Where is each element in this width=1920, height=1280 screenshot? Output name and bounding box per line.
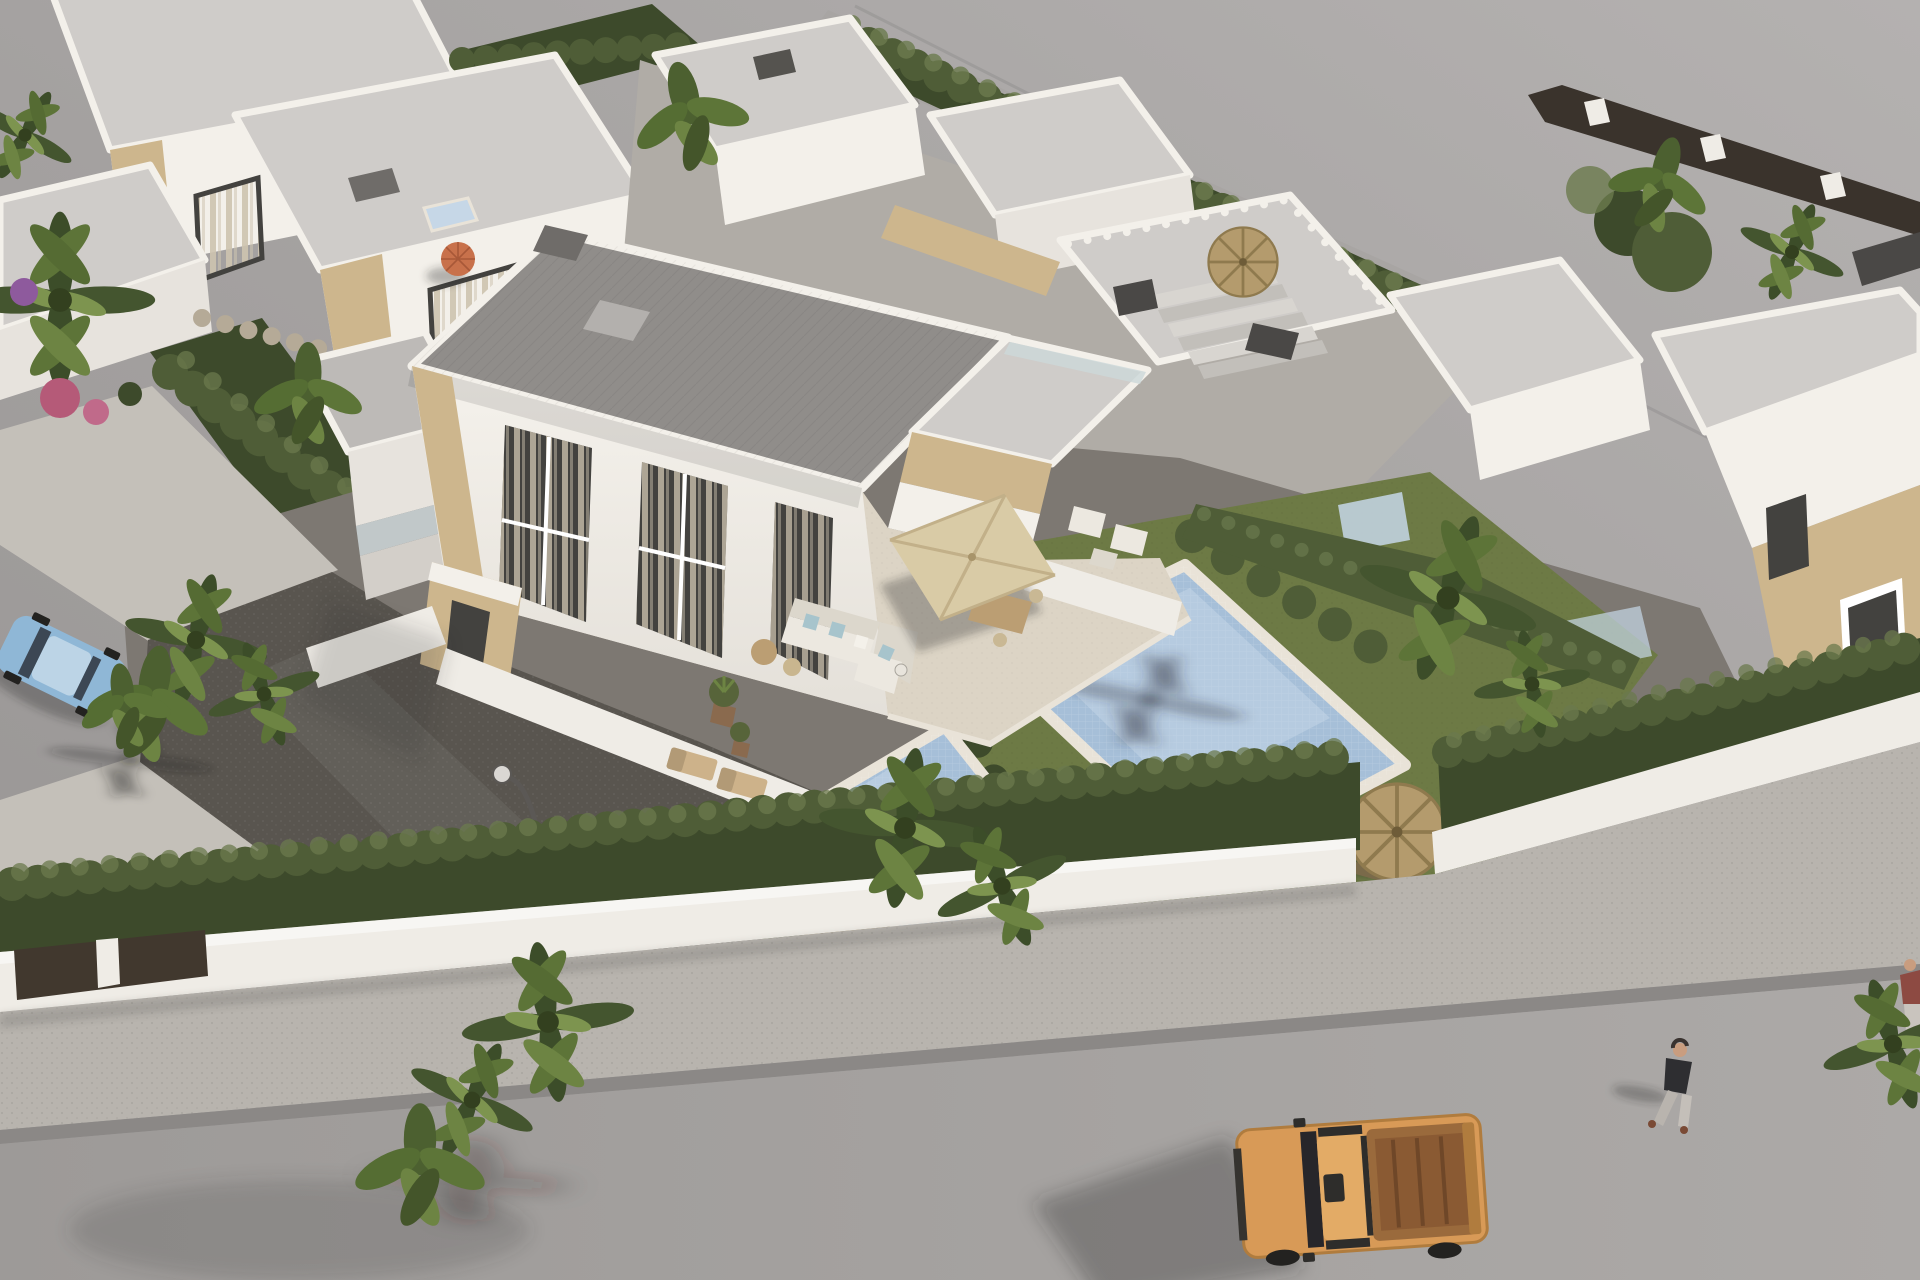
person-torso [1900, 970, 1920, 1006]
dining-chair [1029, 589, 1043, 603]
person-shoe [1680, 1126, 1688, 1134]
tree-canopy [1566, 166, 1614, 214]
gate-pier [96, 938, 120, 988]
aerial-render: Aerial 3D architectural render of a new-… [0, 0, 1920, 1280]
sunroof [1323, 1173, 1345, 1202]
render-stage: Aerial 3D architectural render of a new-… [0, 0, 1920, 1280]
door-recess [1766, 494, 1809, 580]
lantern [895, 664, 907, 676]
parasol-pole-top [968, 553, 976, 561]
plant-foliage [730, 722, 750, 742]
flower-clump [10, 278, 38, 306]
person-head [1904, 959, 1916, 971]
mirror [1293, 1118, 1306, 1128]
straw-palapa [1349, 784, 1445, 880]
coffee-table [751, 639, 777, 665]
flower-clump [83, 399, 109, 425]
dining-chair [993, 633, 1007, 647]
flower-clump [40, 378, 80, 418]
person-shoe [1648, 1120, 1656, 1128]
roof-palapa-umbrella [1209, 228, 1278, 297]
lamp-head [493, 765, 511, 783]
mirror [1303, 1252, 1316, 1262]
leaves [118, 382, 142, 406]
side-table [783, 658, 801, 676]
